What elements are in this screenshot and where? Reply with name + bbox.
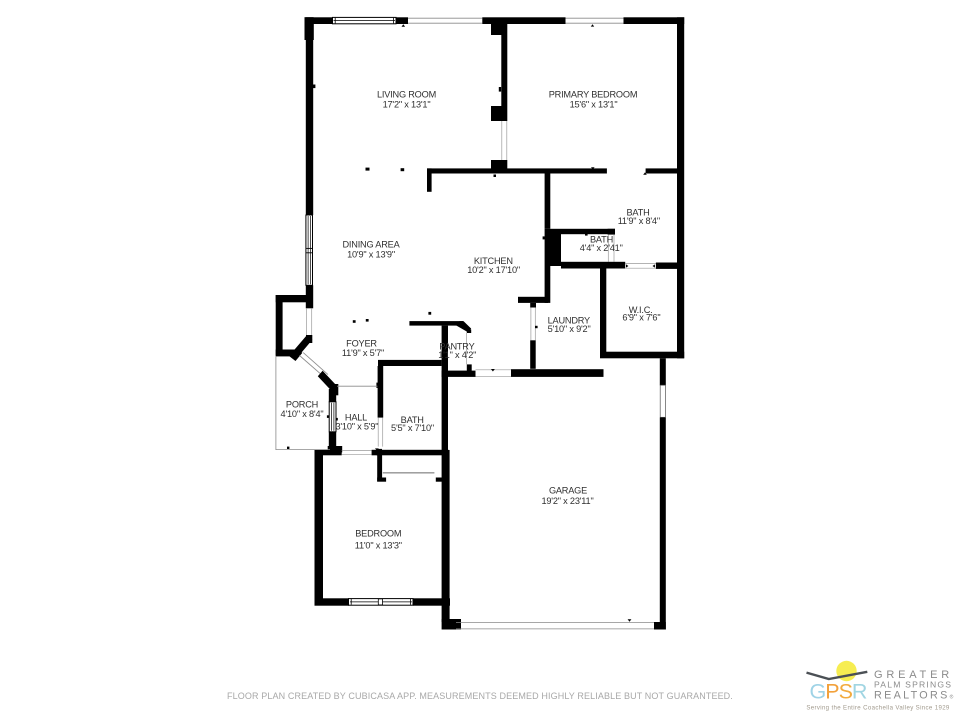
- svg-text:GARAGE: GARAGE: [549, 485, 587, 495]
- svg-text:PRIMARY BEDROOM: PRIMARY BEDROOM: [549, 89, 638, 99]
- svg-text:PORCH: PORCH: [286, 400, 318, 410]
- svg-text:10'9" x 13'9": 10'9" x 13'9": [347, 249, 395, 259]
- svg-text:6'9" x 7'6": 6'9" x 7'6": [622, 313, 660, 323]
- svg-text:PALM SPRINGS: PALM SPRINGS: [874, 680, 952, 690]
- svg-text:FOYER: FOYER: [346, 338, 377, 348]
- svg-text:DINING AREA: DINING AREA: [342, 239, 400, 249]
- svg-text:FLOOR PLAN CREATED BY CUBICASA: FLOOR PLAN CREATED BY CUBICASA APP. MEAS…: [227, 691, 733, 701]
- svg-text:4'4" x 2'41": 4'4" x 2'41": [580, 243, 623, 253]
- svg-text:REALTORS®: REALTORS®: [874, 689, 954, 701]
- svg-text:5'10" x 9'2": 5'10" x 9'2": [548, 324, 591, 334]
- svg-text:3'10" x 5'9": 3'10" x 5'9": [335, 421, 378, 431]
- svg-text:5'5" x 7'10": 5'5" x 7'10": [391, 423, 434, 433]
- svg-text:19'2" x 23'11": 19'2" x 23'11": [541, 496, 593, 506]
- svg-text:11'9" x 8'4": 11'9" x 8'4": [618, 216, 660, 226]
- svg-text:LIVING ROOM: LIVING ROOM: [377, 89, 436, 99]
- svg-text:GPSR: GPSR: [810, 679, 867, 703]
- svg-text:11'0" x 13'3": 11'0" x 13'3": [355, 540, 402, 550]
- svg-text:4'10" x 8'4": 4'10" x 8'4": [281, 409, 324, 419]
- svg-text:11'9" x 5'7": 11'9" x 5'7": [342, 348, 384, 358]
- svg-text:BEDROOM: BEDROOM: [355, 528, 401, 538]
- svg-text:17'2" x 13'1": 17'2" x 13'1": [383, 99, 431, 109]
- svg-text:10'2" x 17'10": 10'2" x 17'10": [467, 265, 520, 275]
- svg-text:1'1" x 4'2": 1'1" x 4'2": [438, 350, 476, 360]
- svg-text:Serving the Entire Coachella V: Serving the Entire Coachella Valley Sinc…: [806, 704, 950, 711]
- svg-text:15'6" x 13'1": 15'6" x 13'1": [570, 100, 618, 110]
